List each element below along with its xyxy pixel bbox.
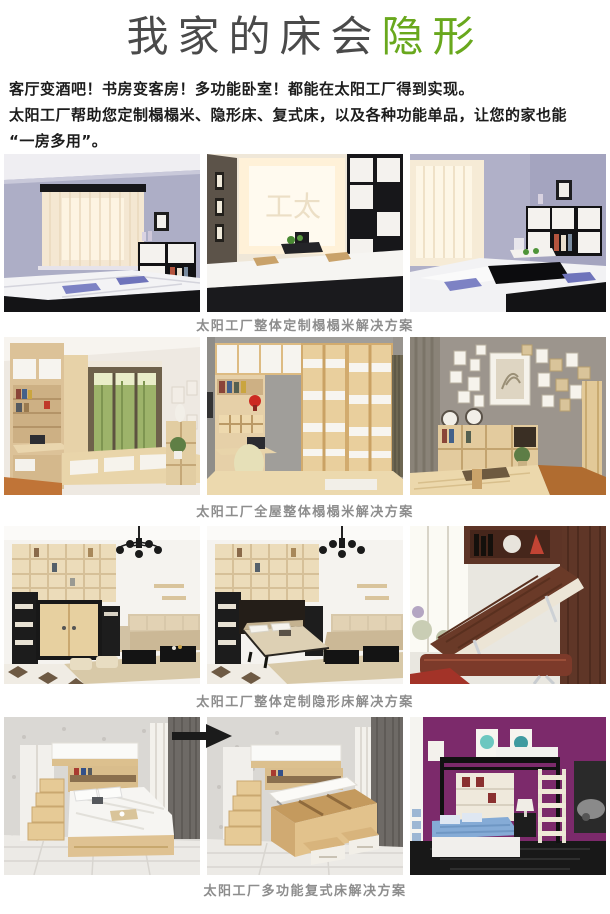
- murphy-open-illustration: [207, 526, 403, 684]
- caption-band-4: 太阳工厂多功能复式床解决方案: [0, 875, 610, 904]
- wood-study-illustration: [4, 337, 200, 495]
- caption-duplex-bed: 太阳工厂多功能复式床解决方案: [203, 880, 406, 899]
- photo-tatami-tea-table: 工太: [207, 154, 403, 312]
- caption-band-1: 太阳工厂整体定制榻榻米解决方案: [0, 312, 610, 337]
- intro-paragraph: 客厅变酒吧！书房变客房！多功能卧室！都能在太阳工厂得到实现。 太阳工厂帮助您定制…: [9, 76, 601, 154]
- murphy-mahogany-illustration: [410, 526, 606, 684]
- intro-line-2: 太阳工厂帮助您定制榻榻米、隐形床、复式床，以及各种功能单品，让您的家也能: [9, 102, 601, 128]
- photo-wall-illustration: [410, 337, 606, 495]
- duplex-open-illustration: [207, 717, 403, 875]
- photo-duplex-bed-storage-open: [207, 717, 403, 875]
- tatami-tea-illustration: 工太: [207, 154, 403, 312]
- caption-tatami-custom: 太阳工厂整体定制榻榻米解决方案: [196, 315, 414, 334]
- tatami-sunken-illustration: [410, 154, 606, 312]
- photo-row-tatami-custom: 工太: [0, 154, 610, 312]
- caption-band-2: 太阳工厂全屋整体榻榻米解决方案: [0, 495, 610, 526]
- photo-row-hidden-bed: [0, 526, 610, 684]
- photo-duplex-bed-closed: [4, 717, 200, 875]
- caption-hidden-bed: 太阳工厂整体定制隐形床解决方案: [196, 691, 414, 710]
- photo-tatami-sunken-table: [410, 154, 606, 312]
- photo-loft-bed-black: [410, 717, 606, 875]
- photo-wood-study-baywindow: [4, 337, 200, 495]
- photo-row-whole-house: [0, 337, 610, 495]
- caption-whole-house: 太阳工厂全屋整体榻榻米解决方案: [196, 501, 414, 520]
- page-title-highlight: 隐形: [382, 12, 484, 61]
- duplex-closed-illustration: [4, 717, 200, 875]
- promo-page: 我家的床会隐形 客厅变酒吧！书房变客房！多功能卧室！都能在太阳工厂得到实现。 太…: [0, 0, 610, 914]
- photo-wood-wardrobe-desk: [207, 337, 403, 495]
- photo-murphy-bed-open: [207, 526, 403, 684]
- murphy-closed-illustration: [4, 526, 200, 684]
- page-title: 我家的床会隐形: [0, 0, 610, 64]
- photo-photo-wall-tatami: [410, 337, 606, 495]
- photo-row-duplex-bed: [0, 717, 610, 875]
- transition-arrow-icon: [172, 722, 234, 750]
- photo-murphy-bed-mahogany: [410, 526, 606, 684]
- wood-wardrobe-illustration: [207, 337, 403, 495]
- page-title-plain: 我家的床会: [126, 12, 381, 61]
- photo-watermark: 工太: [265, 190, 321, 223]
- intro-line-1: 客厅变酒吧！书房变客房！多功能卧室！都能在太阳工厂得到实现。: [9, 76, 601, 102]
- caption-band-3: 太阳工厂整体定制隐形床解决方案: [0, 684, 610, 717]
- intro-line-3: “一房多用”。: [9, 128, 601, 154]
- tatami-room-illustration: [4, 154, 200, 312]
- loft-bed-illustration: [410, 717, 606, 875]
- photo-tatami-room-window: [4, 154, 200, 312]
- photo-murphy-bed-closed: [4, 526, 200, 684]
